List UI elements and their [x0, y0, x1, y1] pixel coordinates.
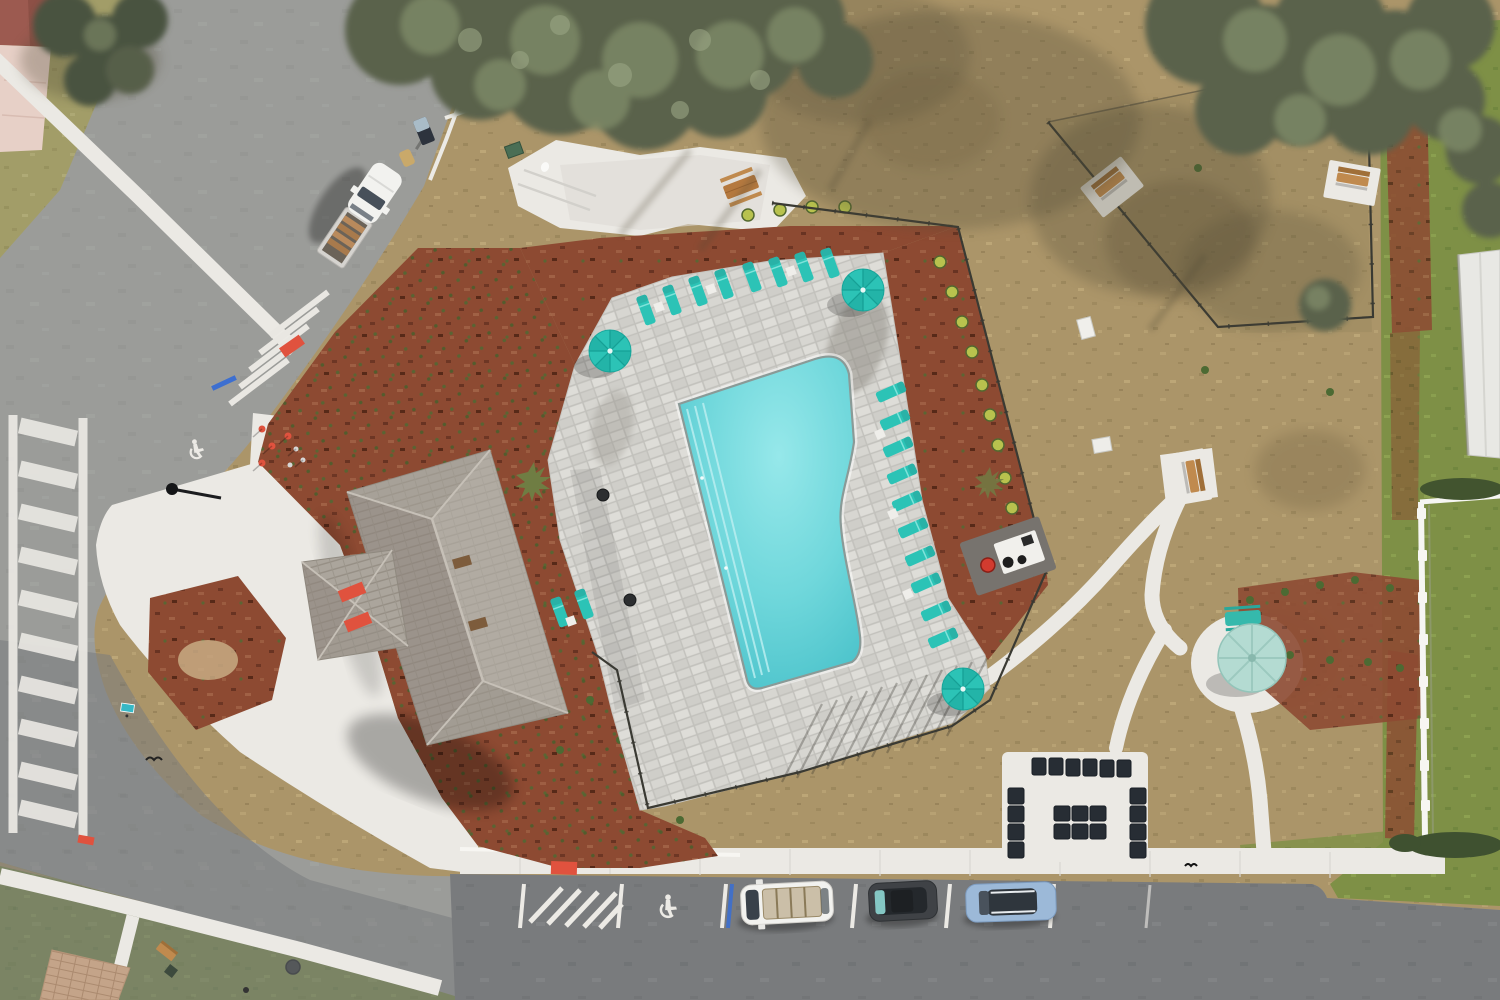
blue-car [962, 881, 1057, 929]
trash-can [624, 594, 636, 606]
aerial-photo-canvas [0, 0, 1500, 1000]
island-dirt-patch [178, 640, 238, 680]
mint-umbrella [1218, 624, 1286, 692]
mulch-right-strip2 [1390, 330, 1420, 520]
pool-handrail [700, 476, 704, 480]
utility-box [1092, 437, 1112, 454]
patio-umbrella [942, 668, 984, 710]
lone-tree [1299, 279, 1351, 331]
manhole-cover [286, 960, 300, 974]
hedge [1407, 832, 1500, 858]
aerial-photo [0, 0, 1500, 1000]
dirt-patch [1255, 430, 1365, 510]
pool-handrail [724, 566, 728, 570]
trash-can [597, 489, 609, 501]
dark-car [864, 880, 938, 929]
bird [243, 987, 249, 993]
patio-umbrella [589, 330, 631, 372]
hedge [1389, 834, 1421, 852]
patio-umbrella [842, 269, 884, 311]
mulch-right-strip3 [1385, 650, 1418, 840]
